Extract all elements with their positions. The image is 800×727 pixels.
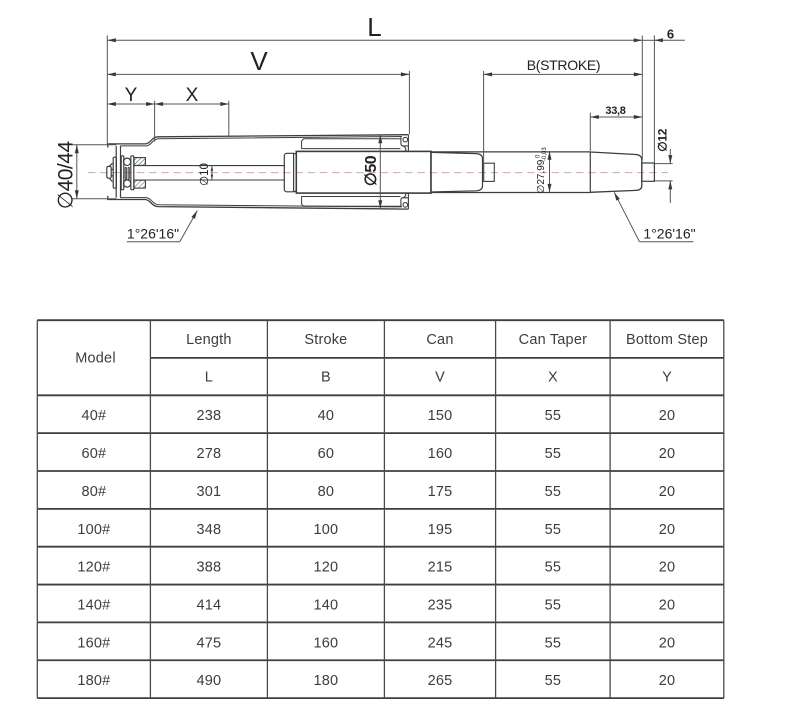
- svg-text:20: 20: [659, 635, 676, 651]
- svg-text:Y: Y: [662, 370, 672, 386]
- svg-text:55: 55: [545, 673, 562, 689]
- svg-text:388: 388: [197, 560, 222, 576]
- svg-text:20: 20: [659, 408, 676, 424]
- svg-text:100: 100: [314, 522, 339, 538]
- svg-text:160: 160: [314, 635, 339, 651]
- svg-text:195: 195: [428, 522, 453, 538]
- svg-text:60: 60: [318, 446, 335, 462]
- svg-text:55: 55: [545, 522, 562, 538]
- svg-text:265: 265: [428, 673, 453, 689]
- svg-text:348: 348: [197, 522, 222, 538]
- svg-text:80: 80: [318, 484, 335, 500]
- svg-text:235: 235: [428, 598, 453, 614]
- svg-text:L: L: [205, 370, 213, 386]
- svg-text:Y: Y: [125, 85, 138, 106]
- svg-text:X: X: [548, 370, 558, 386]
- svg-text:414: 414: [197, 598, 222, 614]
- svg-text:175: 175: [428, 484, 453, 500]
- svg-text:80#: 80#: [82, 484, 107, 500]
- svg-text:∅12: ∅12: [656, 128, 670, 152]
- svg-text:33,8: 33,8: [605, 105, 625, 117]
- svg-text:V: V: [250, 46, 268, 76]
- svg-text:150: 150: [428, 408, 453, 424]
- svg-text:X: X: [186, 85, 199, 106]
- svg-text:278: 278: [197, 446, 222, 462]
- svg-text:20: 20: [659, 673, 676, 689]
- svg-text:40: 40: [318, 408, 335, 424]
- svg-text:160: 160: [428, 446, 453, 462]
- svg-text:Model: Model: [75, 351, 116, 367]
- svg-text:55: 55: [545, 635, 562, 651]
- svg-text:140#: 140#: [77, 598, 110, 614]
- svg-text:∅50: ∅50: [363, 155, 380, 186]
- svg-text:20: 20: [659, 446, 676, 462]
- svg-text:55: 55: [545, 446, 562, 462]
- svg-text:20: 20: [659, 598, 676, 614]
- svg-text:20: 20: [659, 522, 676, 538]
- svg-text:L: L: [367, 12, 381, 42]
- svg-text:Can Taper: Can Taper: [519, 332, 587, 348]
- svg-text:55: 55: [545, 408, 562, 424]
- svg-text:140: 140: [314, 598, 339, 614]
- svg-text:60#: 60#: [82, 446, 107, 462]
- svg-text:490: 490: [197, 673, 222, 689]
- svg-text:1°26'16": 1°26'16": [127, 226, 179, 242]
- svg-text:20: 20: [659, 484, 676, 500]
- svg-text:215: 215: [428, 560, 453, 576]
- svg-text:40#: 40#: [82, 408, 107, 424]
- svg-text:301: 301: [197, 484, 222, 500]
- svg-text:180#: 180#: [77, 673, 110, 689]
- svg-text:Bottom Step: Bottom Step: [626, 332, 708, 348]
- svg-text:∅27,99: ∅27,99: [536, 159, 547, 193]
- svg-text:B: B: [321, 370, 331, 386]
- svg-text:120: 120: [314, 560, 339, 576]
- svg-text:180: 180: [314, 673, 339, 689]
- svg-text:Stroke: Stroke: [304, 332, 347, 348]
- svg-text:0: 0: [536, 154, 542, 158]
- svg-text:160#: 160#: [77, 635, 110, 651]
- svg-text:6: 6: [667, 27, 674, 42]
- svg-text:120#: 120#: [77, 560, 110, 576]
- svg-text:238: 238: [197, 408, 222, 424]
- svg-text:55: 55: [545, 484, 562, 500]
- svg-text:1°26'16": 1°26'16": [643, 226, 695, 242]
- svg-text:55: 55: [545, 560, 562, 576]
- svg-text:475: 475: [197, 635, 222, 651]
- svg-text:∅40/44: ∅40/44: [55, 141, 78, 210]
- svg-text:B(STROKE): B(STROKE): [527, 57, 601, 73]
- svg-text:55: 55: [545, 598, 562, 614]
- svg-text:-0,03: -0,03: [542, 147, 548, 161]
- svg-text:V: V: [435, 370, 445, 386]
- svg-text:245: 245: [428, 635, 453, 651]
- svg-text:Length: Length: [186, 332, 232, 348]
- svg-text:20: 20: [659, 560, 676, 576]
- svg-text:Can: Can: [426, 332, 453, 348]
- svg-text:∅10: ∅10: [199, 163, 211, 186]
- svg-text:100#: 100#: [77, 522, 110, 538]
